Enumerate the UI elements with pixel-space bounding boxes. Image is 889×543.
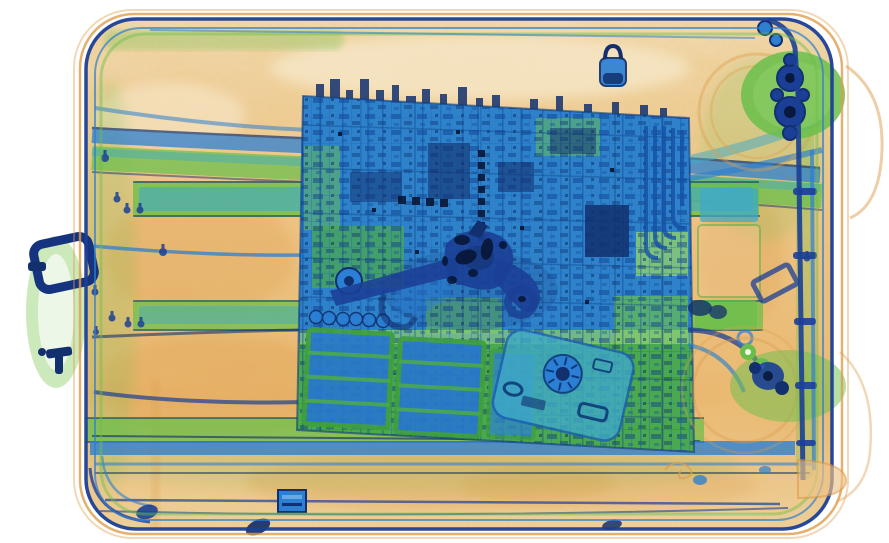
- xray-scan-svg: [0, 0, 889, 543]
- strap-buckle: [278, 490, 306, 512]
- battery-pack-left: [304, 330, 393, 428]
- xray-scan-image: [0, 0, 889, 543]
- battery-pack-right: [396, 338, 485, 436]
- pocket-panel: [698, 225, 760, 297]
- pocket-teal-block: [700, 188, 758, 222]
